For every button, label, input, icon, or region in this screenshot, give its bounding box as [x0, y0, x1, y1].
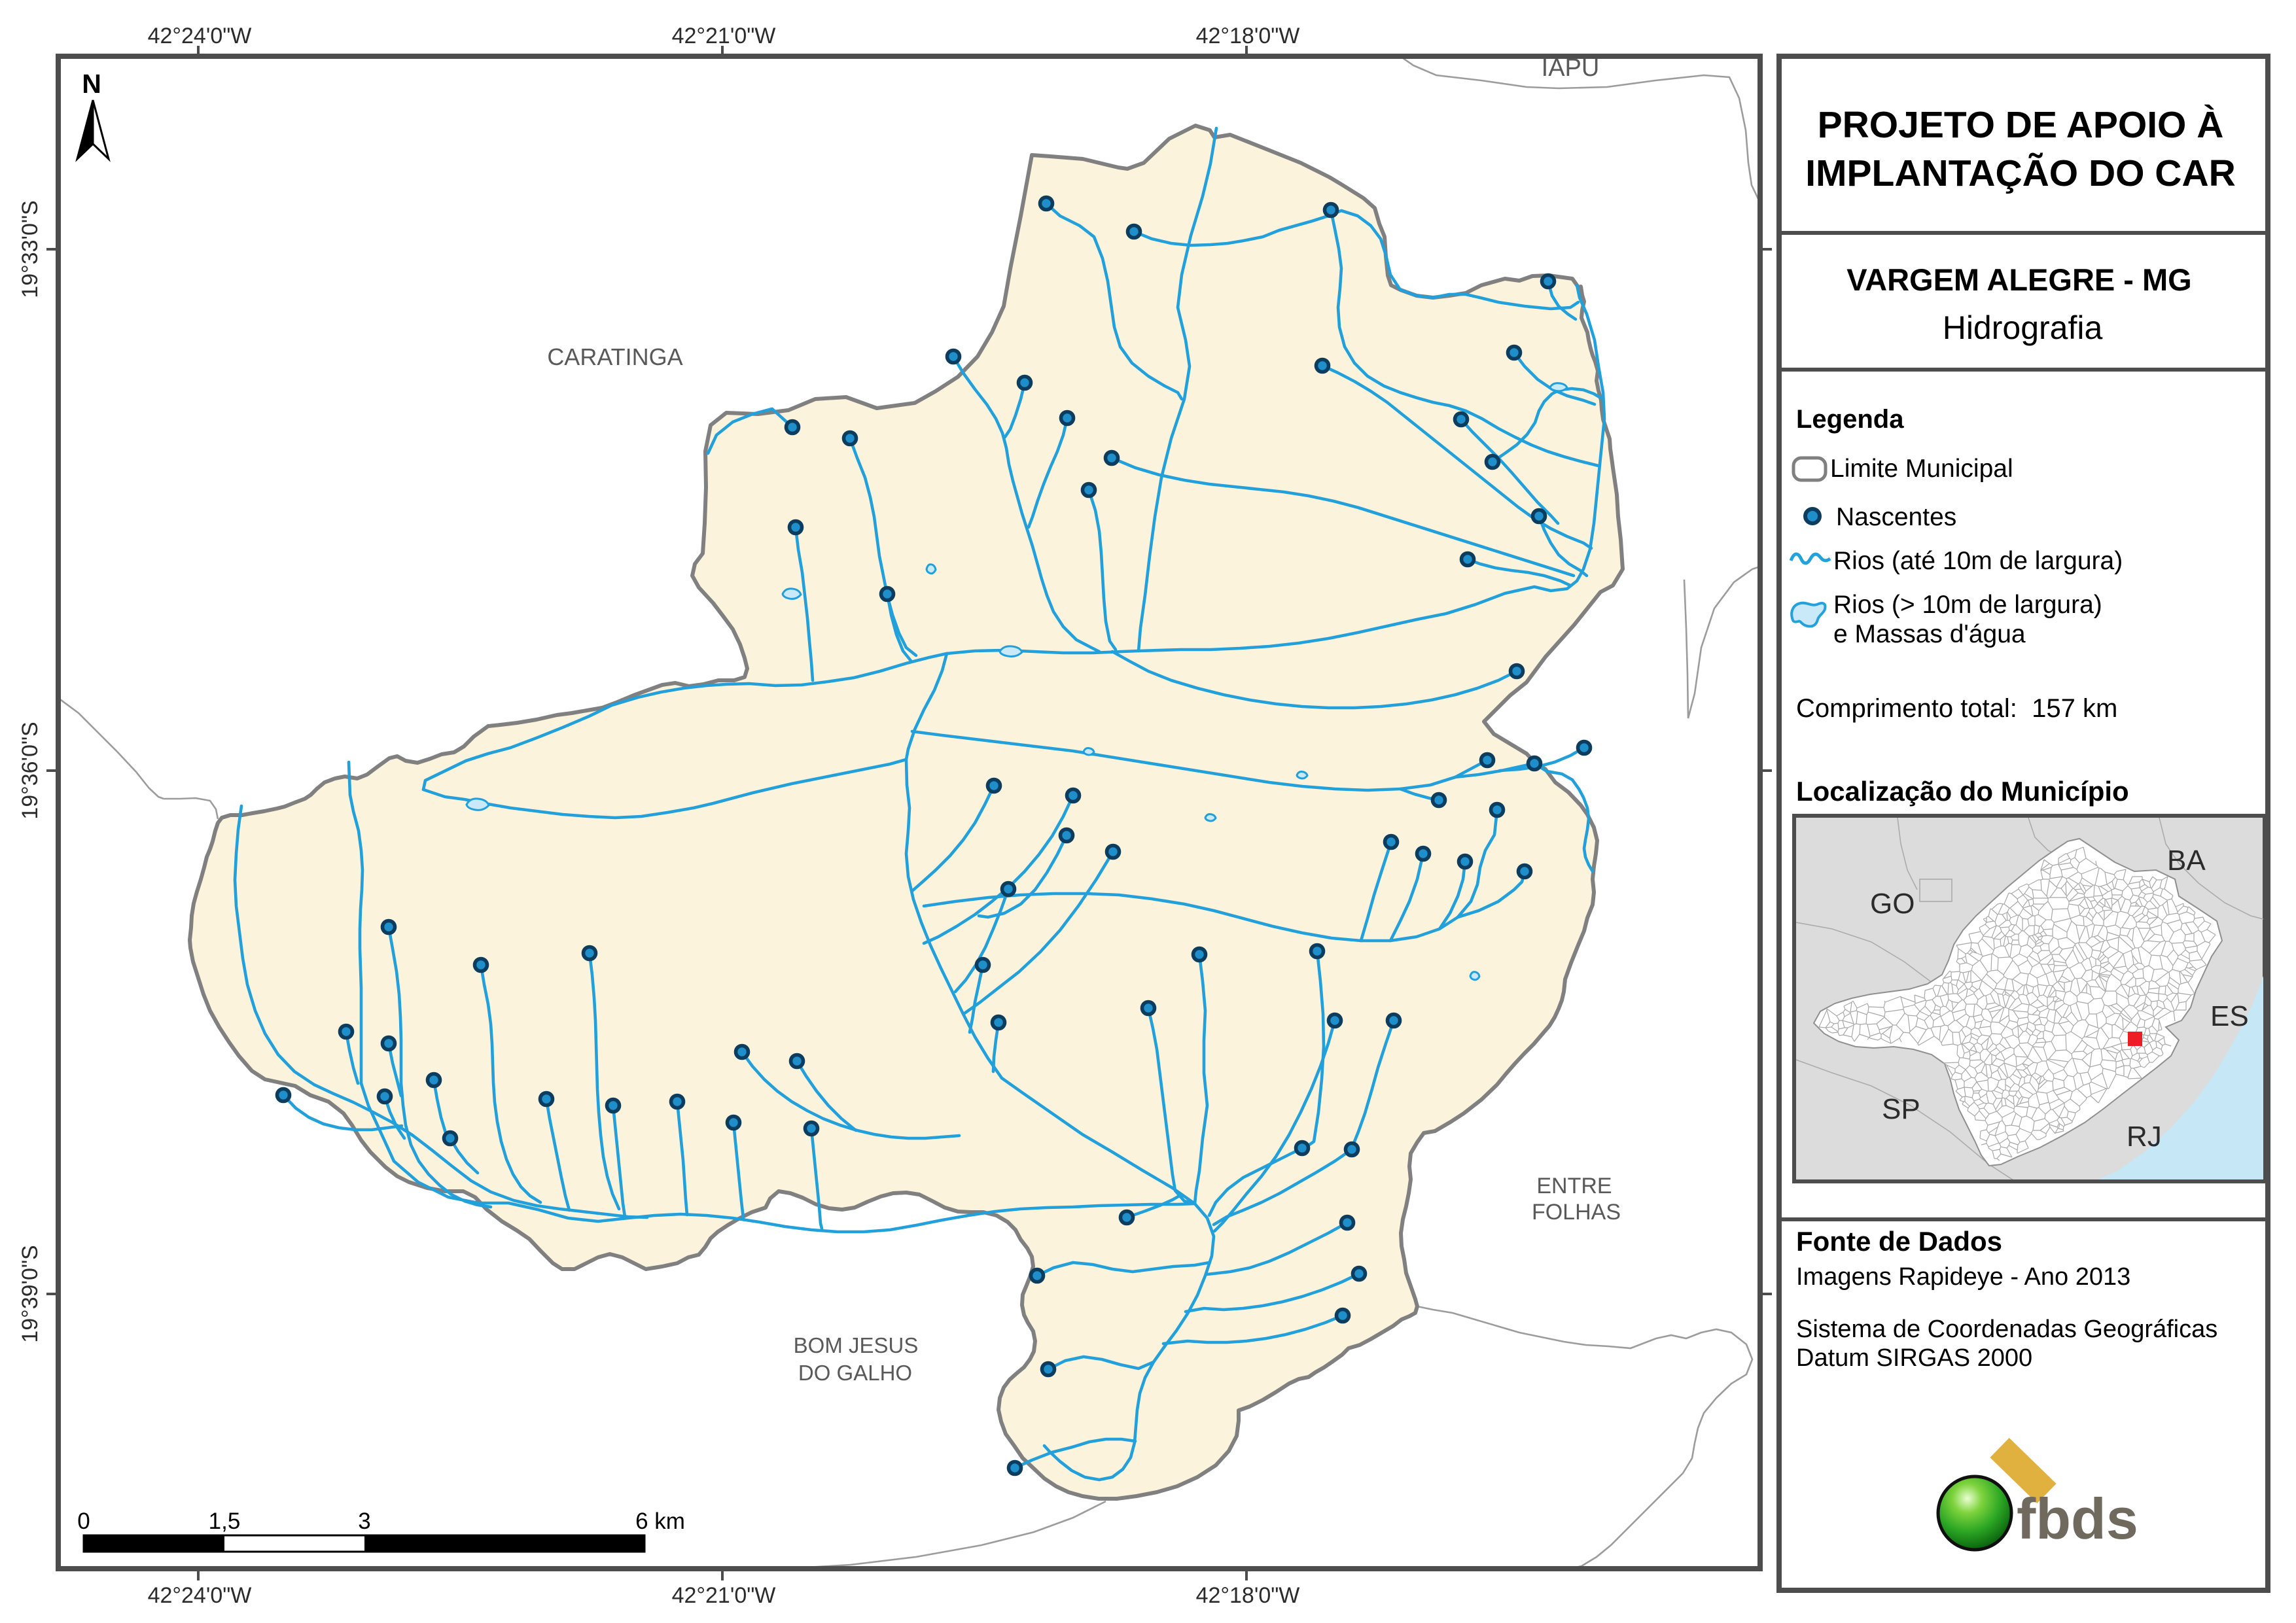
svg-text:VARGEM ALEGRE - MG: VARGEM ALEGRE - MG: [1846, 262, 2191, 297]
svg-text:42°24'0"W: 42°24'0"W: [148, 24, 252, 48]
svg-text:GO: GO: [1870, 888, 1915, 920]
svg-text:ES: ES: [2210, 1000, 2249, 1032]
svg-text:Nascentes: Nascentes: [1836, 503, 1956, 531]
svg-text:Datum SIRGAS 2000: Datum SIRGAS 2000: [1796, 1344, 2032, 1372]
svg-text:PROJETO DE APOIO À: PROJETO DE APOIO À: [1818, 104, 2224, 146]
svg-text:42°18'0"W: 42°18'0"W: [1196, 24, 1300, 48]
svg-text:Fonte de Dados: Fonte de Dados: [1796, 1226, 2002, 1257]
svg-text:3: 3: [358, 1509, 370, 1534]
svg-text:RJ: RJ: [2127, 1121, 2162, 1153]
svg-text:42°24'0"W: 42°24'0"W: [148, 1583, 252, 1608]
svg-text:Rios (até 10m de largura): Rios (até 10m de largura): [1833, 547, 2123, 575]
svg-text:Rios (> 10m de largura): Rios (> 10m de largura): [1833, 591, 2102, 619]
svg-text:Hidrografia: Hidrografia: [1943, 309, 2103, 346]
svg-text:6 km: 6 km: [635, 1509, 685, 1534]
svg-text:DO GALHO: DO GALHO: [798, 1361, 912, 1385]
svg-text:FOLHAS: FOLHAS: [1532, 1200, 1621, 1225]
svg-text:e Massas d'água: e Massas d'água: [1833, 620, 2026, 648]
svg-text:Limite Municipal: Limite Municipal: [1830, 455, 2013, 483]
svg-text:Legenda: Legenda: [1796, 405, 1904, 434]
svg-text:19°33'0"S: 19°33'0"S: [18, 200, 43, 298]
svg-text:IMPLANTAÇÃO DO CAR: IMPLANTAÇÃO DO CAR: [1805, 152, 2236, 194]
svg-text:BOM JESUS: BOM JESUS: [794, 1333, 919, 1357]
svg-text:ENTRE: ENTRE: [1536, 1174, 1612, 1198]
svg-text:N: N: [82, 69, 101, 99]
svg-text:42°21'0"W: 42°21'0"W: [672, 24, 776, 48]
svg-text:Sistema de Coordenadas Geográf: Sistema de Coordenadas Geográficas: [1796, 1316, 2217, 1343]
svg-text:CARATINGA: CARATINGA: [547, 343, 682, 370]
svg-text:fbds: fbds: [2017, 1486, 2138, 1551]
svg-text:19°39'0"S: 19°39'0"S: [18, 1245, 43, 1342]
svg-text:Comprimento total: 157 km: Comprimento total: 157 km: [1796, 694, 2117, 723]
svg-text:BA: BA: [2167, 845, 2206, 877]
svg-text:42°18'0"W: 42°18'0"W: [1196, 1583, 1300, 1608]
svg-text:0: 0: [77, 1509, 90, 1534]
svg-text:SP: SP: [1882, 1093, 1920, 1125]
svg-text:1,5: 1,5: [209, 1509, 241, 1534]
svg-text:19°36'0"S: 19°36'0"S: [18, 722, 43, 819]
svg-text:IAPU: IAPU: [1542, 54, 1600, 82]
svg-text:Localização do Município: Localização do Município: [1796, 776, 2129, 807]
svg-text:Imagens Rapideye - Ano 2013: Imagens Rapideye - Ano 2013: [1796, 1263, 2130, 1291]
svg-text:42°21'0"W: 42°21'0"W: [672, 1583, 776, 1608]
